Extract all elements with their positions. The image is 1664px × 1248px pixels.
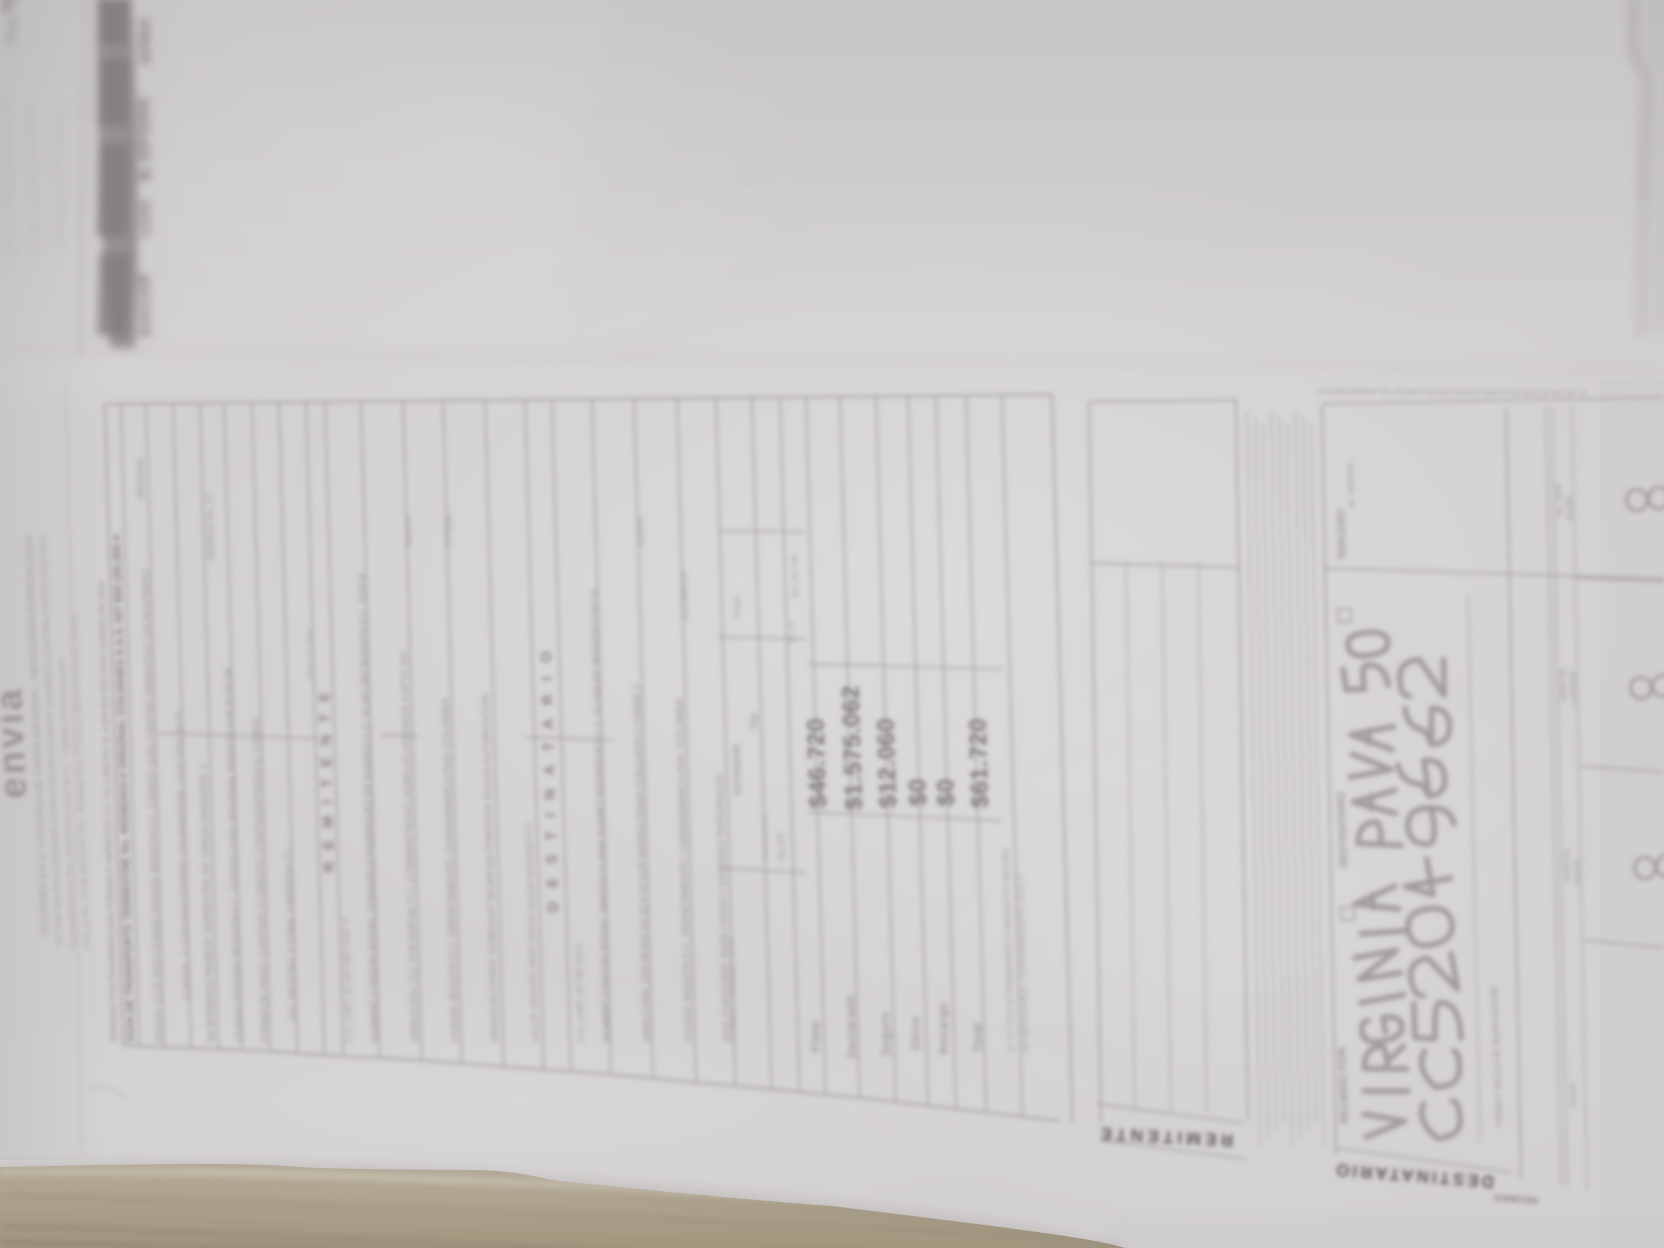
svg-text:Kg 125: Kg 125 — [775, 833, 786, 860]
svg-text:Recargo: Recargo — [936, 1002, 951, 1055]
svg-text:Telefono: Telefono — [403, 516, 414, 549]
svg-text:REMESA No. 27: REMESA No. 27 — [204, 493, 216, 560]
svg-text:Total: Total — [970, 1022, 985, 1053]
svg-text:$0: $0 — [932, 778, 960, 806]
svg-text:Seguro: Seguro — [878, 1011, 893, 1056]
svg-text:7775031: 7775031 — [443, 513, 454, 548]
svg-text:LLEGADA: LLEGADA — [1568, 671, 1578, 706]
svg-text:HORA DE: HORA DE — [1558, 668, 1568, 702]
svg-text:Peso a cobrar: Peso a cobrar — [760, 813, 770, 860]
svg-text:DACAR: DACAR — [136, 272, 154, 336]
svg-text:$12.060: $12.060 — [872, 718, 902, 809]
svg-text:$46.720: $46.720 — [802, 718, 832, 809]
svg-text:ESTANDAR: ESTANDAR — [732, 744, 744, 795]
svg-text:ORIGINAL: ORIGINAL — [135, 457, 146, 500]
svg-text:Flete: Flete — [808, 1020, 823, 1052]
svg-text:No. GUIA: No. GUIA — [1554, 484, 1564, 516]
svg-text:$1.575.062: $1.575.062 — [838, 685, 868, 811]
svg-text:Declarado: Declarado — [843, 994, 859, 1058]
svg-text:$0: $0 — [904, 778, 932, 806]
svg-text:Otros: Otros — [908, 1016, 923, 1051]
svg-text:TERCERO: TERCERO — [1335, 509, 1349, 561]
svg-text:ORIGINAL CLIENTE HOJA 12: ORIGINAL CLIENTE HOJA 12 — [53, 108, 67, 250]
svg-text:FECHA: FECHA — [1568, 1083, 1578, 1109]
svg-text:903382: 903382 — [1564, 495, 1574, 520]
svg-text:3127550147: 3127550147 — [679, 570, 690, 620]
svg-text:B.OPORN: B.OPORN — [136, 96, 154, 180]
svg-text:120S: 120S — [137, 199, 153, 238]
svg-text:Telefono: Telefono — [635, 516, 646, 549]
svg-text:Regist: Regist — [732, 595, 742, 619]
svg-text:HORA DE: HORA DE — [1562, 848, 1572, 882]
svg-text:SALIDA: SALIDA — [1572, 859, 1582, 886]
svg-text:SPBG: SPBG — [136, 16, 153, 64]
svg-text:750: 750 — [750, 713, 761, 730]
svg-text:50 x 40 x 40: 50 x 40 x 40 — [790, 554, 800, 598]
svg-text:OBS: 01 FRA: OBS: 01 FRA — [305, 628, 316, 680]
svg-text:$61.720: $61.720 — [964, 718, 994, 809]
svg-text:Vol. cm: Vol. cm — [786, 620, 796, 645]
svg-text:No. REMESA: No. REMESA — [1345, 463, 1356, 509]
